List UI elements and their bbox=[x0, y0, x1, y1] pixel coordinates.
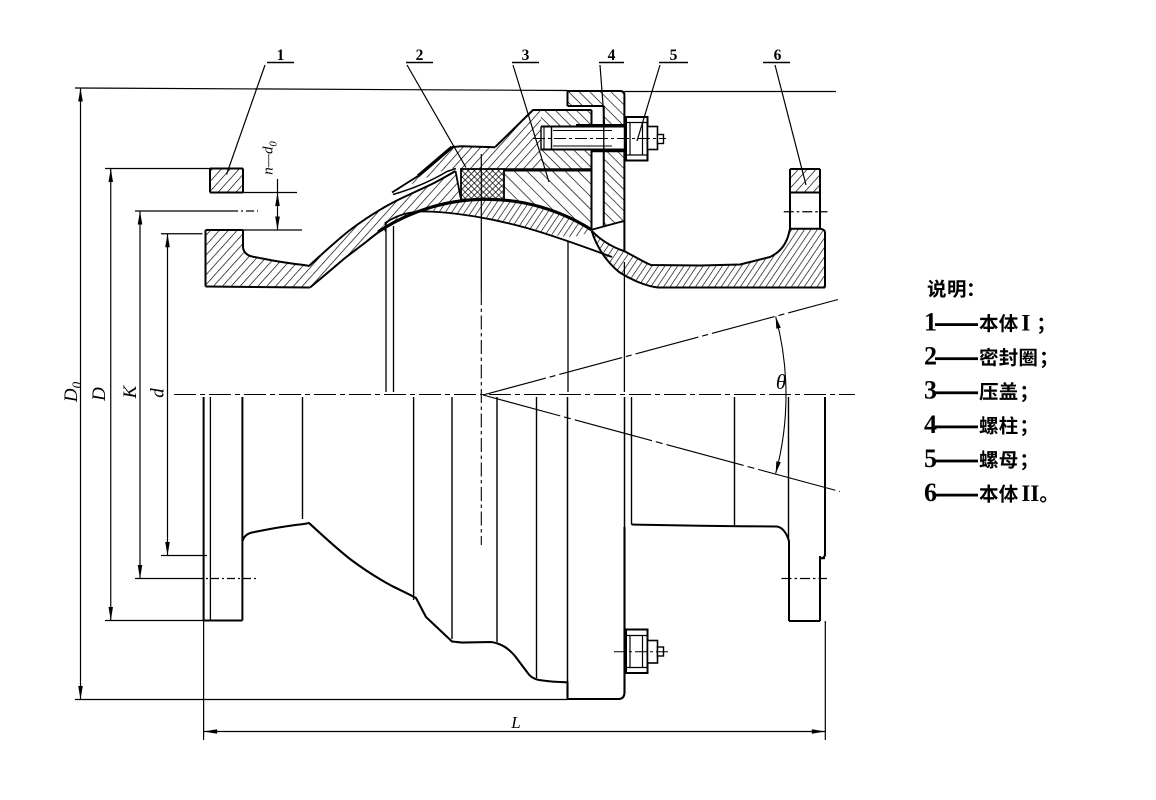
svg-text:d: d bbox=[148, 388, 169, 398]
svg-text:D0: D0 bbox=[61, 381, 84, 403]
svg-text:K: K bbox=[120, 384, 141, 399]
svg-text:1: 1 bbox=[924, 308, 937, 337]
svg-text:II: II bbox=[1021, 481, 1039, 506]
svg-text:1: 1 bbox=[277, 47, 285, 64]
svg-text:θ: θ bbox=[776, 370, 786, 394]
svg-text:5: 5 bbox=[670, 47, 678, 64]
svg-text:D: D bbox=[89, 387, 110, 402]
svg-text:5: 5 bbox=[924, 444, 937, 473]
svg-text:3: 3 bbox=[924, 376, 937, 405]
svg-text:n—d0: n—d0 bbox=[261, 140, 280, 174]
svg-text:4: 4 bbox=[924, 410, 937, 439]
svg-text:L: L bbox=[510, 713, 520, 732]
svg-text:2: 2 bbox=[416, 47, 424, 64]
svg-text:2: 2 bbox=[924, 342, 937, 371]
svg-text:6: 6 bbox=[924, 478, 937, 507]
svg-text:4: 4 bbox=[608, 47, 616, 64]
svg-text:3: 3 bbox=[522, 47, 530, 64]
svg-text:I: I bbox=[1021, 311, 1030, 336]
svg-text:6: 6 bbox=[774, 47, 782, 64]
